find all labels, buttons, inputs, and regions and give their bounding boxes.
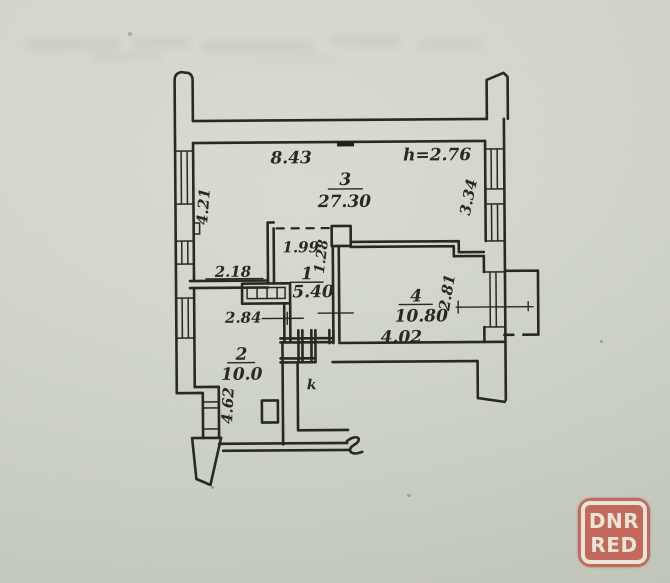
dim-left-upper: 4.21 [193, 188, 214, 226]
dim-hall-width: 2.84 [224, 309, 262, 327]
door-mark-label: k [307, 377, 317, 393]
wall-top [193, 119, 487, 143]
watermark-frame: DNR RED [581, 501, 647, 564]
window-left-lower [176, 298, 194, 338]
dim-room2-top: 2.18 [214, 263, 252, 281]
ceiling-height-note: h=2.76 [403, 145, 471, 165]
room2-area: 10.0 [221, 365, 263, 385]
break-symbol [347, 437, 362, 453]
window-left-middle [176, 241, 194, 264]
room2-number: 2 [235, 345, 248, 365]
closet-shelves [247, 287, 285, 298]
dim-room4-bottom: 4.02 [381, 327, 423, 347]
window-bottom-left [203, 402, 219, 438]
window-left-upper [175, 151, 193, 204]
room3-number: 3 [339, 170, 351, 190]
dim-left-lower: 4.62 [218, 387, 238, 424]
watermark-badge: DNR RED [578, 498, 650, 567]
labels-group: 8.43 h=2.76 3 27.30 1.99 1.28 1 5.40 2.1… [193, 145, 483, 424]
scanned-floor-plan-page: 8.43 h=2.76 3 27.30 1.99 1.28 1 5.40 2.1… [0, 0, 670, 583]
room1-area: 5.40 [292, 282, 334, 302]
wall-bay-slanted [192, 438, 221, 485]
watermark-line2: RED [590, 533, 637, 557]
dim-top-width: 8.43 [269, 148, 312, 168]
wall-room4-right-inner [484, 256, 485, 342]
vent-shaft [262, 400, 278, 422]
window-right-upper [485, 149, 504, 189]
room3-area: 27.30 [317, 192, 372, 212]
wall-right-outer [504, 119, 506, 400]
wall-room2-right [282, 342, 283, 444]
dim-line-balcony [456, 301, 533, 314]
wall-left-inner [193, 143, 195, 387]
wall-hall-left [268, 222, 274, 283]
floor-plan-drawing: 8.43 h=2.76 3 27.30 1.99 1.28 1 5.40 2.1… [0, 0, 670, 583]
wall-room4-top [351, 241, 484, 257]
pillar [332, 226, 351, 246]
wall-right-inner [485, 141, 486, 241]
dim-balcony-side: 2.81 [435, 273, 459, 313]
wall-room2-bottom [219, 443, 350, 451]
room4-number: 4 [410, 286, 422, 306]
wall-right-stub [478, 361, 505, 402]
wall-left-step [177, 387, 219, 438]
window-right-lower [485, 204, 504, 241]
wall-corridor [298, 362, 348, 430]
dim-room1-depth: 1.28 [312, 238, 332, 274]
wall-left-and-chimney [175, 72, 195, 393]
dim-right-upper: 3.34 [456, 177, 481, 216]
watermark-line1: DNR [589, 509, 639, 533]
door-grid [280, 330, 333, 362]
balcony-outline [504, 271, 538, 335]
wall-chimney-right [487, 73, 508, 119]
balcony-window [484, 272, 505, 327]
